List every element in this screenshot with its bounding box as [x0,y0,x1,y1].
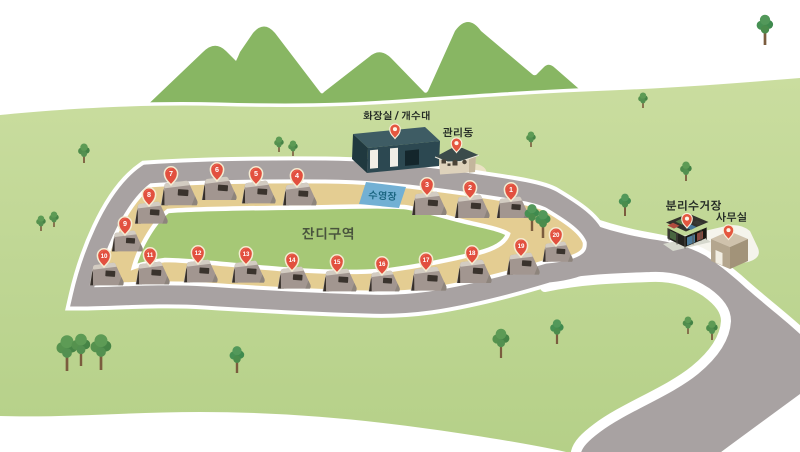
svg-text:13: 13 [243,251,250,258]
svg-text:15: 15 [334,259,341,266]
svg-text:14: 14 [289,257,296,264]
svg-text:12: 12 [195,250,202,257]
svg-text:9: 9 [123,219,127,228]
svg-text:11: 11 [147,252,154,259]
svg-text:4: 4 [295,171,299,180]
svg-text:8: 8 [147,190,151,199]
svg-text:3: 3 [425,180,429,189]
svg-text:16: 16 [379,261,386,268]
svg-text:18: 18 [469,250,476,257]
svg-text:5: 5 [254,169,258,178]
svg-text:2: 2 [468,183,472,192]
svg-text:6: 6 [215,165,219,174]
svg-text:1: 1 [509,185,513,194]
svg-text:17: 17 [423,257,430,264]
svg-text:7: 7 [169,169,173,178]
svg-text:20: 20 [553,232,560,239]
svg-text:19: 19 [518,243,525,250]
svg-text:10: 10 [101,253,108,260]
